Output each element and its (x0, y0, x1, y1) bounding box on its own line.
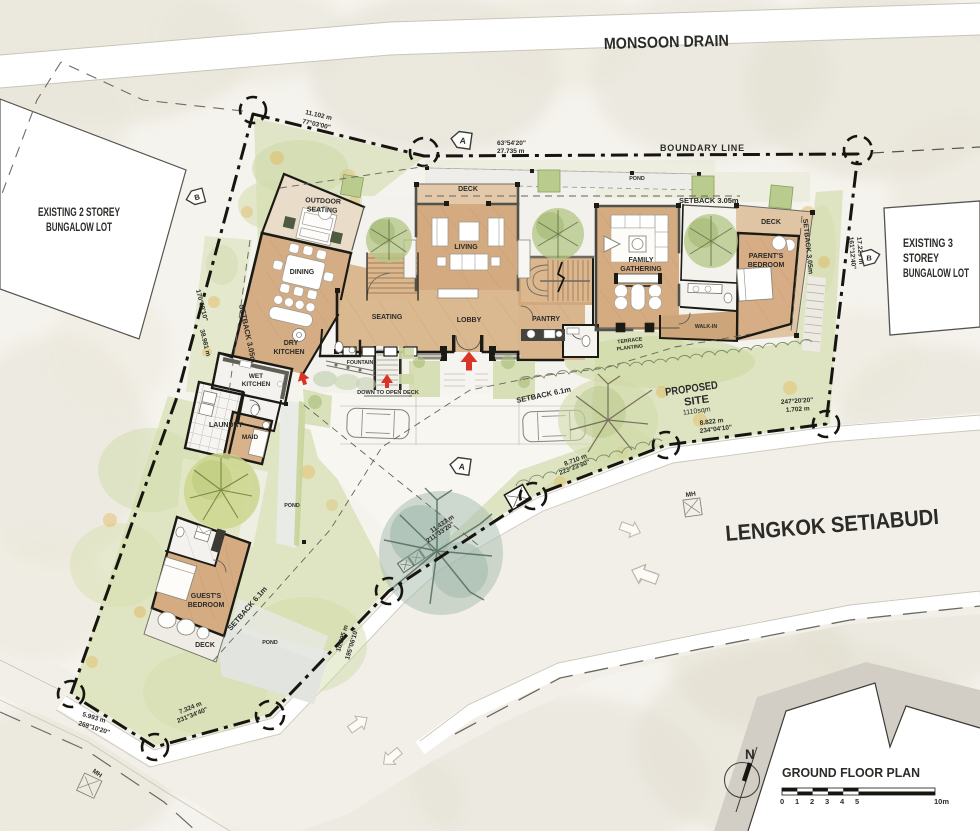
svg-text:FAMILY: FAMILY (628, 257, 653, 264)
svg-text:SEATING: SEATING (372, 314, 403, 321)
svg-text:0: 0 (780, 797, 784, 806)
svg-text:EXISTING 3: EXISTING 3 (903, 238, 953, 250)
svg-text:PANTRY: PANTRY (532, 316, 560, 323)
svg-text:WALK-IN: WALK-IN (695, 324, 717, 330)
svg-text:MAID: MAID (242, 434, 259, 441)
svg-text:LIVING: LIVING (454, 244, 478, 251)
svg-text:POND: POND (284, 503, 300, 509)
svg-text:POND: POND (629, 176, 645, 182)
svg-text:BEDROOM: BEDROOM (748, 262, 785, 269)
svg-text:EXISTING 2 STOREY: EXISTING 2 STOREY (38, 207, 120, 219)
svg-text:MH: MH (685, 491, 696, 499)
svg-text:63°54'20": 63°54'20" (497, 139, 526, 147)
svg-text:DINING: DINING (290, 269, 315, 276)
svg-text:5: 5 (855, 797, 859, 806)
svg-text:2: 2 (810, 797, 814, 806)
svg-text:BEDROOM: BEDROOM (188, 602, 225, 609)
svg-text:B: B (866, 253, 872, 262)
svg-text:PARENT'S: PARENT'S (749, 253, 784, 260)
svg-text:DOWN TO OPEN DECK: DOWN TO OPEN DECK (357, 390, 419, 396)
svg-text:27.735 m: 27.735 m (497, 148, 525, 155)
svg-text:10m: 10m (934, 797, 949, 806)
svg-text:DECK: DECK (761, 219, 781, 226)
svg-text:SETBACK 3.05m: SETBACK 3.05m (679, 196, 739, 205)
svg-text:KITCHEN: KITCHEN (273, 349, 304, 356)
svg-text:POND: POND (262, 640, 278, 646)
svg-text:BUNGALOW LOT: BUNGALOW LOT (903, 268, 969, 280)
svg-text:MONSOON DRAIN: MONSOON DRAIN (604, 33, 729, 53)
svg-text:STOREY: STOREY (903, 253, 939, 265)
svg-text:N: N (745, 747, 755, 762)
svg-text:GROUND FLOOR PLAN: GROUND FLOOR PLAN (782, 765, 920, 780)
svg-text:FOUNTAIN: FOUNTAIN (347, 360, 374, 366)
svg-text:GATHERING: GATHERING (620, 266, 662, 273)
svg-text:LOBBY: LOBBY (457, 317, 482, 324)
svg-text:DRY: DRY (284, 340, 299, 347)
svg-text:3: 3 (825, 797, 829, 806)
svg-text:LAUNDRY: LAUNDRY (209, 422, 243, 429)
svg-text:GUEST'S: GUEST'S (191, 593, 222, 600)
svg-text:KITCHEN: KITCHEN (242, 381, 271, 388)
svg-text:DECK: DECK (195, 642, 215, 649)
svg-text:BOUNDARY LINE: BOUNDARY LINE (660, 143, 745, 153)
svg-text:1: 1 (795, 797, 799, 806)
svg-text:DECK: DECK (458, 186, 478, 193)
svg-text:WET: WET (249, 373, 263, 380)
svg-text:BUNGALOW LOT: BUNGALOW LOT (46, 222, 112, 234)
